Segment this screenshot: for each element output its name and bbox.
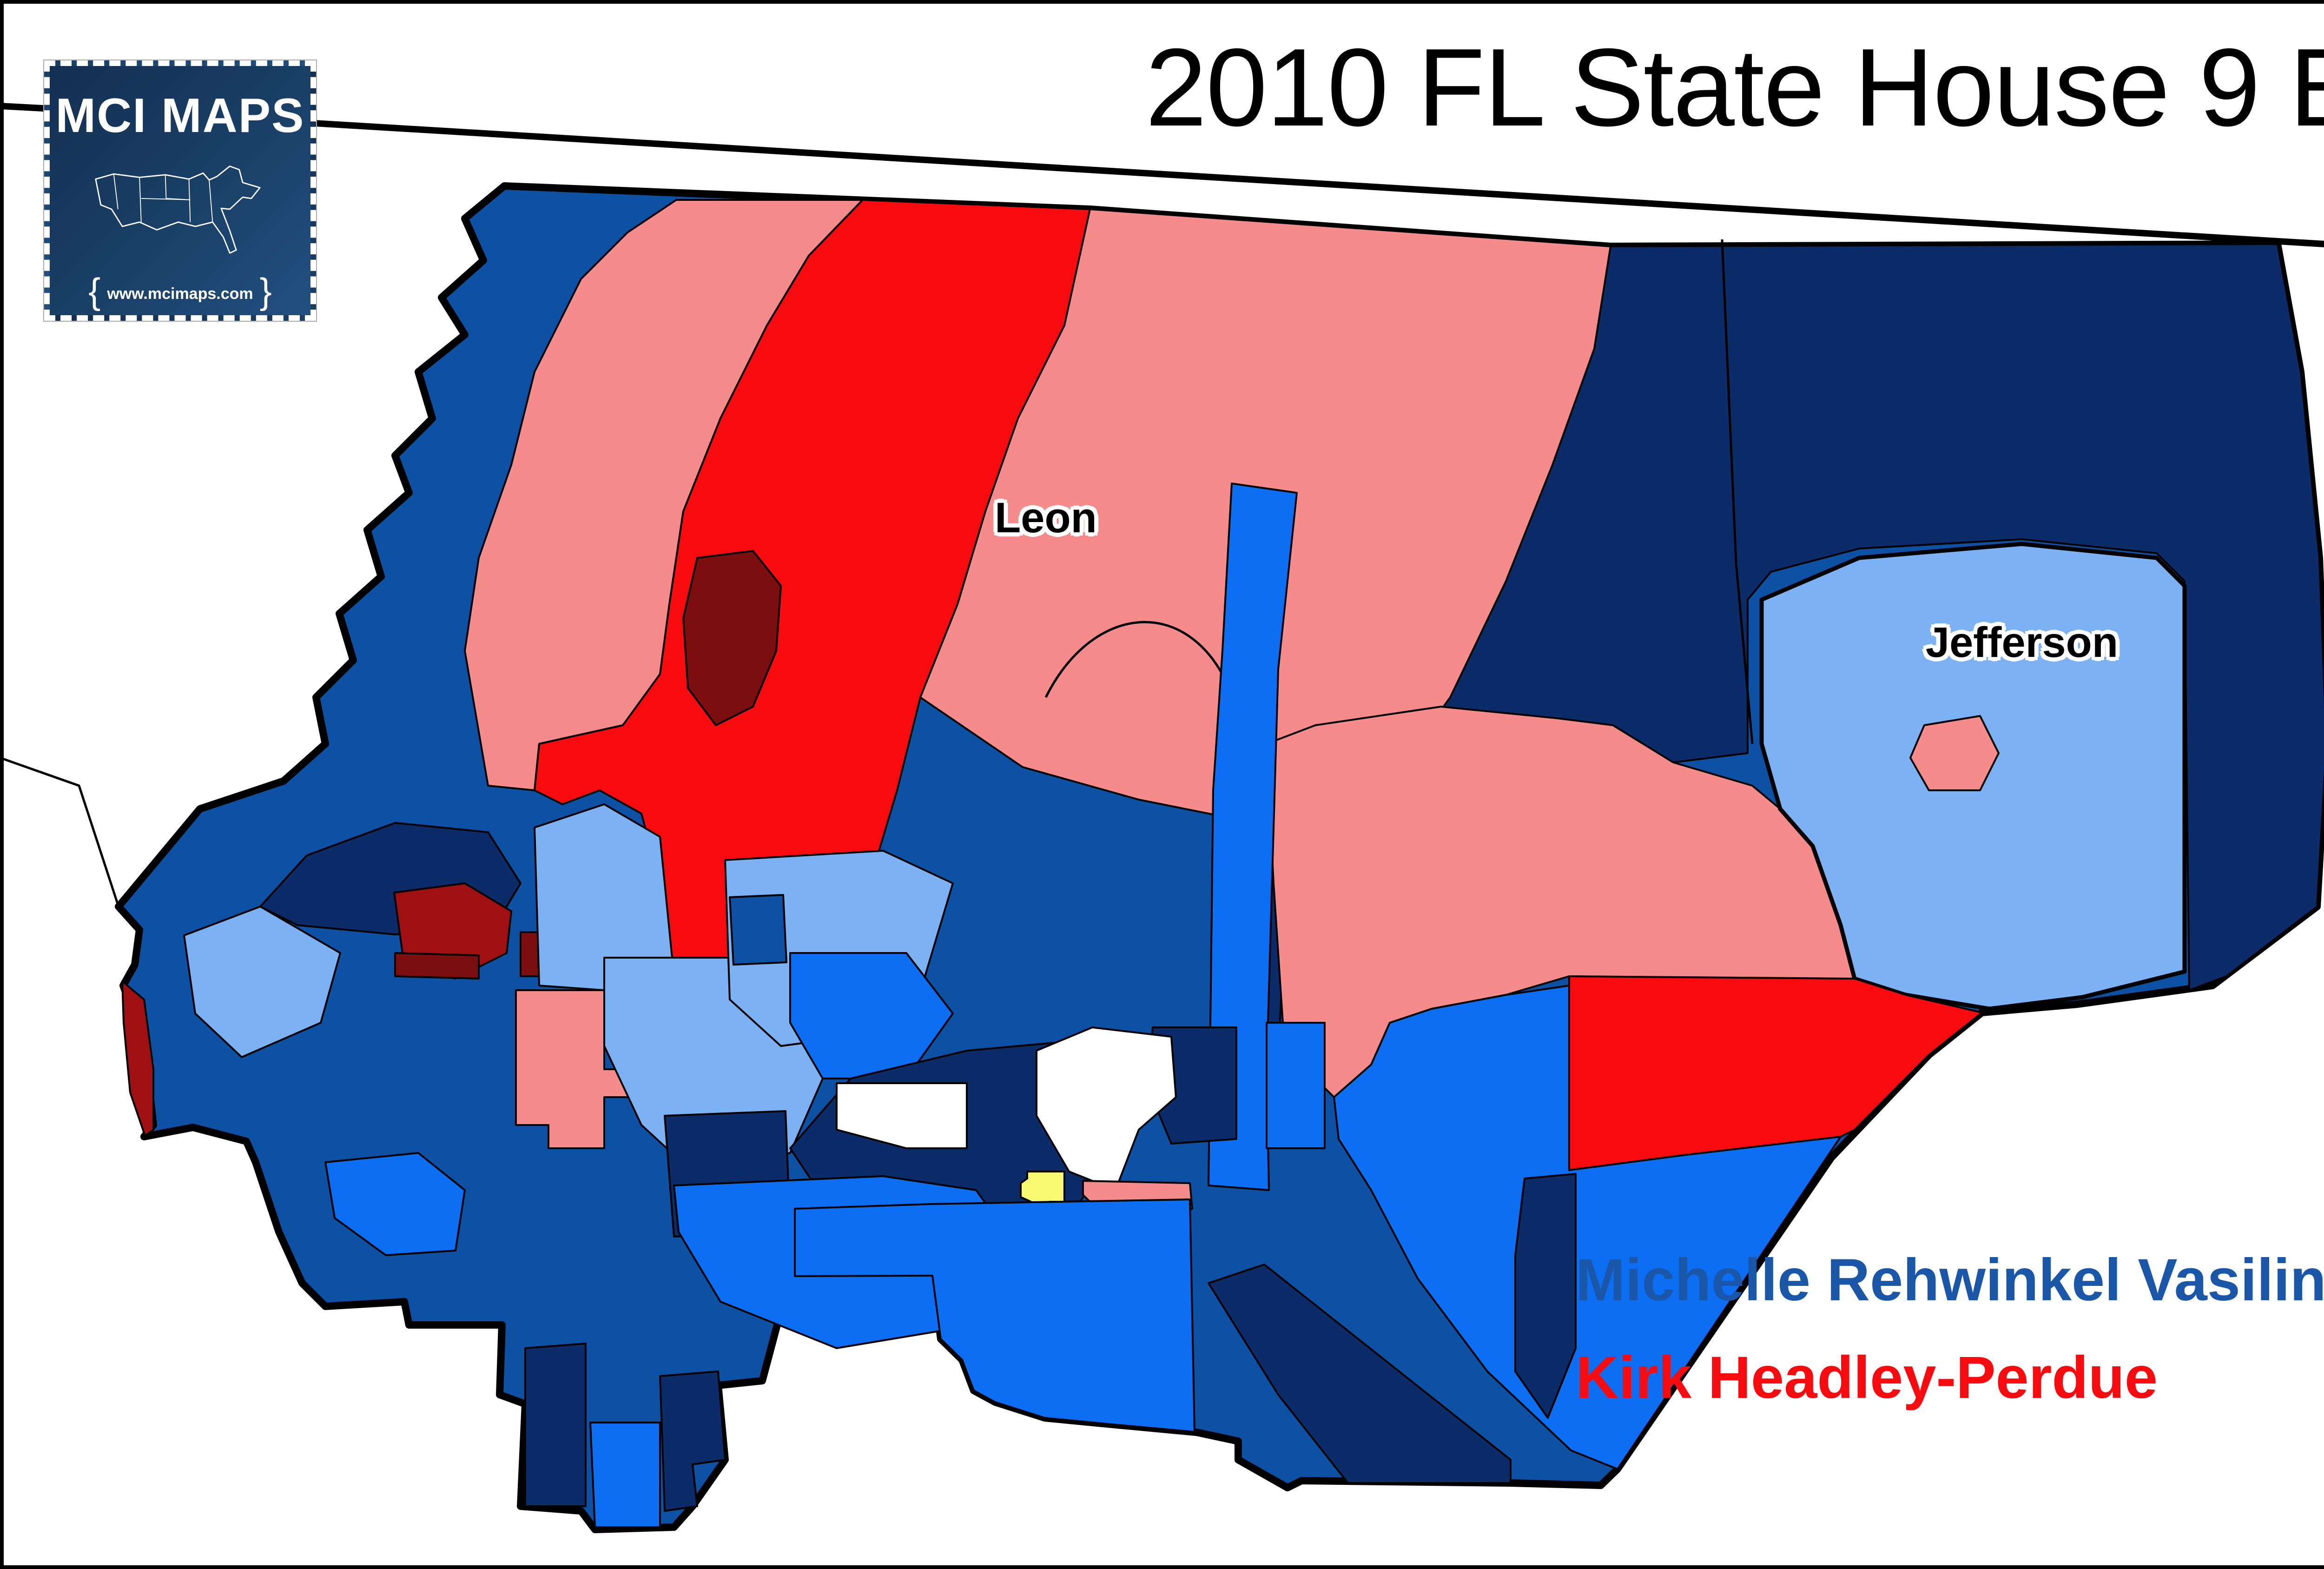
candidate-name: Kirk Headley-Perdue — [1576, 1344, 2158, 1412]
candidate-name: Michelle Rehwinkel Vasilinda — [1576, 1246, 2324, 1314]
brace-left: { — [88, 270, 100, 312]
logo-wordmark: MCI MAPS — [56, 88, 305, 144]
river-line — [0, 758, 119, 907]
usa-map-icon — [80, 158, 280, 261]
page-title: 2010 FL State House 9 Election — [1050, 24, 2324, 145]
county-label-leon: Leon — [944, 494, 1148, 543]
precinct-region — [590, 1423, 660, 1527]
precinct-region — [525, 1344, 586, 1506]
logo-url-text: www.mcimaps.com — [107, 285, 253, 303]
mci-maps-logo: MCI MAPS { www.mcimaps.com } — [44, 60, 316, 321]
precinct-region — [1910, 716, 1999, 790]
logo-url: { www.mcimaps.com } — [82, 273, 278, 315]
brace-right: } — [260, 270, 272, 312]
county-label-jefferson: Jefferson — [1892, 618, 2152, 667]
precinct-region — [1267, 1023, 1325, 1148]
precinct-region — [730, 895, 786, 965]
precinct-region — [660, 1371, 725, 1511]
results-panel: Michelle Rehwinkel Vasilinda 58.7% Kirk … — [1576, 1246, 2324, 1441]
precinct-region — [395, 953, 479, 979]
map-graphic: 2010 FL State House 9 Election MCI MAPS … — [0, 0, 2324, 1569]
result-row-vasilinda: Michelle Rehwinkel Vasilinda 58.7% — [1576, 1246, 2324, 1320]
result-row-headley-perdue: Kirk Headley-Perdue 41.3% — [1576, 1344, 2324, 1418]
precinct-region — [1569, 976, 1982, 1170]
